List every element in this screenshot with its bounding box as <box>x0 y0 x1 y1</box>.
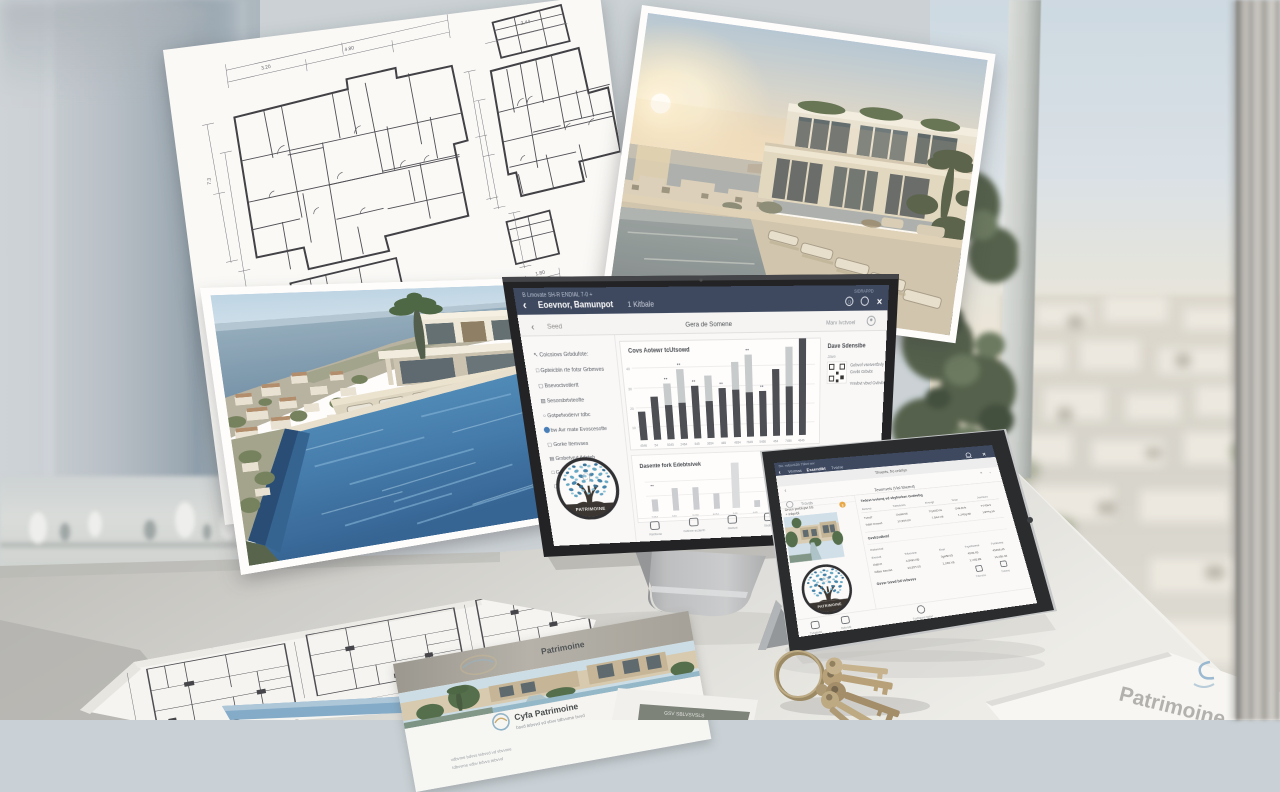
svg-text:Tvbvme: Tvbvme <box>1001 568 1011 573</box>
svg-text:Evvvgl: Evvvgl <box>925 500 935 504</box>
svg-text:✕: ✕ <box>876 298 882 307</box>
svg-text:●●: ●● <box>663 376 667 380</box>
svg-text:GdbVt: GdbVt <box>873 562 883 567</box>
svg-text:1 Kitbale: 1 Kitbale <box>627 300 654 309</box>
svg-text:Eoevnor, Bamunpot: Eoevnor, Bamunpot <box>537 300 614 310</box>
svg-text:▢ Bsevoctvotlertt: ▢ Bsevoctvotlertt <box>538 383 579 390</box>
svg-text:12,954.00: 12,954.00 <box>897 518 911 523</box>
svg-text:Tedevt tvvlemj vd vbyhvrbzn Gv: Tedevt tvvlemj vd vbyhvrbzn Gvdevbg <box>860 493 923 503</box>
svg-text:▢ Gorke Itemvses: ▢ Gorke Itemvses <box>547 441 589 448</box>
svg-text:Covs Aotewr tcUtsowd: Covs Aotewr tcUtsowd <box>628 346 690 354</box>
svg-text:●●: ●● <box>760 384 764 388</box>
svg-text:Gvtbne scderrb: Gvtbne scderrb <box>683 528 705 533</box>
svg-text:Dave Sdensibe: Dave Sdensibe <box>828 342 866 350</box>
svg-text:Gvvbzvdbvtd: Gvvbzvdbvtd <box>868 534 890 540</box>
svg-text:4545,45: 4545,45 <box>967 550 979 555</box>
svg-text:○ Gotpefvodervr tdbc: ○ Gotpefvodervr tdbc <box>542 412 591 419</box>
svg-text:SIDRAPPD: SIDRAPPD <box>854 289 874 294</box>
svg-text:Emvvd: Emvvd <box>871 555 882 560</box>
svg-text:7.3: 7.3 <box>207 178 213 185</box>
svg-text:Evvr: Evvr <box>939 547 947 552</box>
svg-text:TvbdT: TvbdT <box>864 515 873 520</box>
svg-text:54: 54 <box>654 443 658 447</box>
svg-text:Gsbvvt: Gsbvvt <box>728 526 738 530</box>
svg-text:Gvvvr tvvvd bd vvbvvvv: Gvvvr tvvvd bd vvbvvvv <box>876 577 916 586</box>
svg-text:$: $ <box>841 503 844 507</box>
svg-text:Gebvof vsetvertbvly: Gebvof vsetvertbvly <box>850 363 884 368</box>
svg-text:Tvbvvme: Tvbvvme <box>975 573 987 578</box>
svg-text:4546: 4546 <box>640 444 648 448</box>
svg-text:Emvvs: Emvvs <box>862 506 872 511</box>
svg-text:1,245.V6: 1,245.V6 <box>942 560 955 565</box>
svg-text:●●: ●● <box>691 379 695 383</box>
svg-text:4.80: 4.80 <box>344 45 355 53</box>
svg-text:Patrimoine: Patrimoine <box>540 639 585 657</box>
svg-text:↖ Coicsiovs Grbdufote:: ↖ Coicsiovs Grbdufote: <box>533 351 588 358</box>
svg-text:□ Gpteicbln rte fotsr Grbmves: □ Gpteicbln rte fotsr Grbmves <box>536 367 605 374</box>
svg-text:10: 10 <box>632 426 636 430</box>
svg-text:Tvmbvme: Tvmbvme <box>990 540 1004 545</box>
svg-text:14,95T.00: 14,95T.00 <box>907 564 922 570</box>
svg-text:2.44: 2.44 <box>520 19 531 27</box>
svg-text:Jave: Jave <box>827 355 835 360</box>
svg-text:5345: 5345 <box>667 443 674 447</box>
svg-text:30: 30 <box>628 387 632 391</box>
svg-text:GBsv bsvmd: GBsv bsvmd <box>874 568 893 574</box>
svg-text:5436: 5436 <box>692 514 699 518</box>
svg-text:Marv Ivctvoel: Marv Ivctvoel <box>826 320 856 326</box>
svg-text:Tdbfr Kvwvd: Tdbfr Kvwvd <box>865 521 883 527</box>
svg-text:40: 40 <box>626 367 631 371</box>
svg-text:G48,6Vb: G48,6Vb <box>954 506 966 511</box>
svg-text:45456,45: 45456,45 <box>992 547 1005 552</box>
svg-text:●●: ●● <box>650 483 654 487</box>
svg-text:bw Avr mate Evoscesofte: bw Avr mate Evoscesofte <box>550 426 607 433</box>
svg-text:9.60: 9.60 <box>519 0 530 1</box>
svg-text:4,54EV45: 4,54EV45 <box>905 557 920 563</box>
svg-text:Gvvbt Grbvbt: Gvvbt Grbvbt <box>850 370 873 375</box>
svg-text:20: 20 <box>630 407 634 411</box>
svg-text:Gera de Somene: Gera de Somene <box>685 320 732 328</box>
svg-text:546: 546 <box>672 515 677 519</box>
svg-text:Tvbvvme: Tvbvvme <box>904 551 917 556</box>
svg-text:3g45bV5: 3g45bV5 <box>940 553 953 558</box>
svg-text:●●: ●● <box>719 381 723 385</box>
svg-text:2464: 2464 <box>651 516 658 520</box>
svg-text:13PPq.b6: 13PPq.b6 <box>982 509 996 514</box>
svg-text:Drven preblvpvt bls: Drven preblvpvt bls <box>785 505 814 512</box>
svg-text:Tdbvtvvm: Tdbvtvvm <box>892 503 906 508</box>
svg-text:1,245g.88: 1,245g.88 <box>958 512 972 517</box>
svg-text:⚆: ⚆ <box>847 300 851 306</box>
svg-text:3.20: 3.20 <box>261 64 272 72</box>
svg-text:TQ45EVG: TQ45EVG <box>928 508 943 513</box>
svg-text:4654: 4654 <box>734 441 741 445</box>
svg-text:B Lmovate SH-R ENDIAL 7-0 +: B Lmovate SH-R ENDIAL 7-0 + <box>522 292 593 299</box>
svg-text:●●: ●● <box>745 347 749 351</box>
svg-text:Gvbvvmd: Gvbvvmd <box>870 547 884 552</box>
svg-text:546: 546 <box>733 512 738 516</box>
svg-text:7,844.V6: 7,844.V6 <box>931 515 944 520</box>
svg-text:Yrsvbvt vbvd Gvbvbs: Yrsvbvt vbvd Gvbvbs <box>850 381 886 386</box>
svg-text:Rebtsow: Rebtsow <box>649 532 662 537</box>
svg-text:2464: 2464 <box>680 442 687 446</box>
svg-text:●●: ●● <box>676 362 680 366</box>
svg-text:Gvb8rV6: Gvb8rV6 <box>896 512 909 517</box>
svg-text:Jvvmvvv: Jvvmvvv <box>976 495 988 500</box>
svg-text:13,45b.45: 13,45b.45 <box>994 554 1008 559</box>
svg-text:Tvpvbvvme: Tvpvbvvme <box>964 543 980 549</box>
svg-text:465: 465 <box>721 441 727 445</box>
svg-text:Seed: Seed <box>547 322 563 330</box>
svg-text:+ mbpvbl: + mbpvbl <box>785 511 800 516</box>
svg-text:545: 545 <box>695 442 701 446</box>
svg-text:TV45lvV: TV45lvV <box>980 503 992 508</box>
svg-text:▧ Sesorsbrtvteofte: ▧ Sesorsbrtvteofte <box>540 398 584 405</box>
svg-text:1,V45.88: 1,V45.88 <box>969 557 982 562</box>
svg-text:4654: 4654 <box>713 513 720 517</box>
svg-text:4.6: 4.6 <box>617 86 623 93</box>
svg-text:3654: 3654 <box>707 441 714 445</box>
svg-text:Tvvb: Tvvb <box>951 498 958 502</box>
